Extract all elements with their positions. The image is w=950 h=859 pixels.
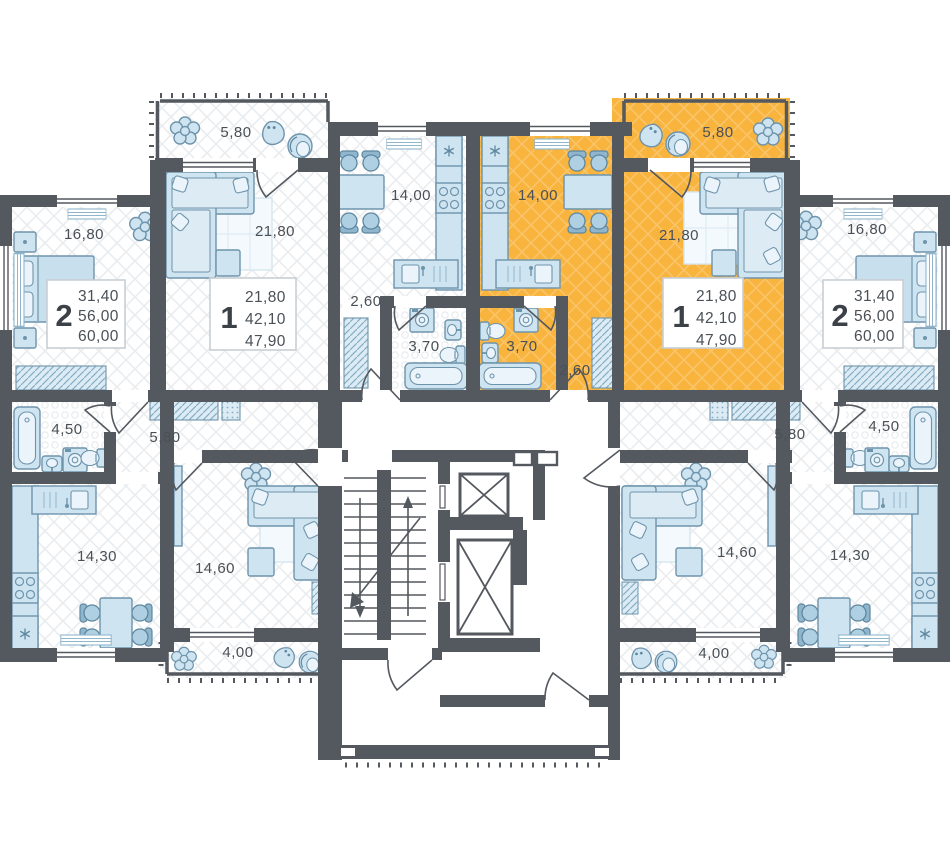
room-area-label: 14,60 (195, 560, 235, 577)
room-area-label: 14,00 (391, 187, 431, 204)
unit-area: 31,40 (854, 288, 895, 305)
ottoman-icon (712, 250, 736, 276)
unit-area: 47,90 (696, 332, 737, 349)
bathtub-icon (910, 407, 936, 469)
wardrobe-icon (344, 318, 368, 388)
wardrobe-icon (16, 366, 106, 390)
staircase (344, 470, 426, 640)
window-icon (0, 246, 12, 330)
kitchen-sink-icon (496, 260, 560, 288)
stove-icon (912, 573, 938, 603)
unit-area: 31,40 (78, 288, 119, 305)
bathtub-icon (14, 407, 40, 469)
toilet-icon (480, 322, 505, 340)
floor-plan: 16,80 5,80 21,80 14,00 2,60 3,70 14,00 2… (0, 0, 950, 859)
arrow-down-icon (355, 606, 365, 618)
arrow-up-icon (403, 496, 413, 508)
window-icon (530, 122, 590, 136)
kitchen-sink-icon (32, 486, 96, 514)
washing-machine-icon (514, 308, 538, 332)
room-area-label: 4,00 (698, 645, 729, 662)
unit-area: 21,80 (245, 289, 286, 306)
bathtub-icon (479, 363, 541, 389)
room-area-label: 4,00 (222, 644, 253, 661)
room-area-label: 5,80 (149, 429, 180, 446)
toilet-icon (81, 449, 106, 467)
window-icon (57, 648, 115, 662)
lounge-chair-icon (655, 651, 677, 673)
unit-card-1room-highlighted[interactable]: 1 21,80 42,10 47,90 (663, 278, 743, 349)
washing-machine-icon (410, 308, 434, 332)
lounge-chair-icon (666, 132, 690, 156)
washing-machine-icon (865, 448, 889, 472)
stove-icon (436, 183, 462, 213)
kitchen-sink-icon (394, 260, 458, 288)
room-area-label: 3,70 (506, 338, 537, 355)
lounge-chair-icon (288, 134, 312, 158)
unit-rooms-count: 1 (672, 299, 689, 334)
lounge-chair-icon (299, 651, 321, 673)
sink-icon (482, 343, 498, 363)
room-area-label: 2,60 (350, 293, 381, 310)
window-icon (694, 158, 750, 172)
stair-stringer (377, 470, 391, 640)
window-icon (378, 122, 426, 136)
sink-icon (42, 456, 62, 472)
room-area-label: 14,30 (830, 547, 870, 564)
unit-card-1room-left[interactable]: 1 21,80 42,10 47,90 (210, 278, 296, 350)
room-area-label: 5,80 (702, 124, 733, 141)
tv-stand-icon (174, 466, 182, 546)
room-area-label: 4,50 (51, 421, 82, 438)
room-area-label: 16,80 (64, 226, 104, 243)
wardrobe-icon (844, 366, 934, 390)
unit-area: 56,00 (78, 308, 119, 325)
floor-plan-page: 16,80 5,80 21,80 14,00 2,60 3,70 14,00 2… (0, 0, 950, 859)
ottoman-icon (676, 548, 702, 576)
room-area-label: 14,60 (717, 544, 757, 561)
kitchen-sink-icon (854, 486, 918, 514)
tv-stand-icon (768, 466, 776, 546)
unit-area: 47,90 (245, 333, 286, 350)
elevator-large-icon (458, 540, 512, 634)
dining-table-icon (336, 175, 384, 209)
sink-icon (889, 456, 909, 472)
window-icon (833, 195, 893, 207)
window-icon (835, 648, 893, 662)
elevator-small-icon (460, 474, 508, 516)
unit-card-2room-left[interactable]: 2 31,40 56,00 60,00 (47, 280, 125, 348)
shaft-vent-icon (537, 452, 557, 465)
unit-area: 42,10 (696, 310, 737, 327)
unit-rooms-count: 2 (55, 298, 72, 333)
room-area-label: 16,80 (847, 221, 887, 238)
room-area-label: 21,80 (659, 227, 699, 244)
window-icon (183, 158, 253, 172)
unit-rooms-count: 1 (220, 300, 237, 335)
room-area-label: 3,70 (408, 338, 439, 355)
shaft-vent-icon (514, 452, 532, 465)
radiator-icon (622, 582, 638, 614)
unit-area: 60,00 (854, 328, 895, 345)
ottoman-icon (248, 548, 274, 576)
window-icon (190, 628, 254, 642)
unit-area: 60,00 (78, 328, 119, 345)
unit-rooms-count: 2 (831, 298, 848, 333)
unit-card-2room-right[interactable]: 2 31,40 56,00 60,00 (823, 280, 903, 348)
stove-icon (482, 183, 508, 213)
room-area-label: 4,50 (868, 418, 899, 435)
bathtub-icon (405, 363, 467, 389)
window-icon (696, 628, 760, 642)
ottoman-icon (216, 250, 240, 276)
toilet-icon (440, 346, 465, 364)
room-area-label: 21,80 (255, 223, 295, 240)
room-area-label: 14,30 (77, 548, 117, 565)
room-area-label: 5,80 (220, 124, 251, 141)
unit-area: 56,00 (854, 308, 895, 325)
window-icon (57, 195, 117, 207)
window-icon (938, 246, 950, 330)
room-area-label: 14,00 (518, 187, 558, 204)
stove-icon (12, 573, 38, 603)
dining-table-icon (564, 175, 612, 209)
room-area-label: 2,60 (559, 362, 590, 379)
elevators (458, 474, 512, 634)
room-area-label: 5,80 (774, 426, 805, 443)
unit-area: 42,10 (245, 311, 286, 328)
unit-area: 21,80 (696, 288, 737, 305)
sink-icon (445, 320, 461, 340)
